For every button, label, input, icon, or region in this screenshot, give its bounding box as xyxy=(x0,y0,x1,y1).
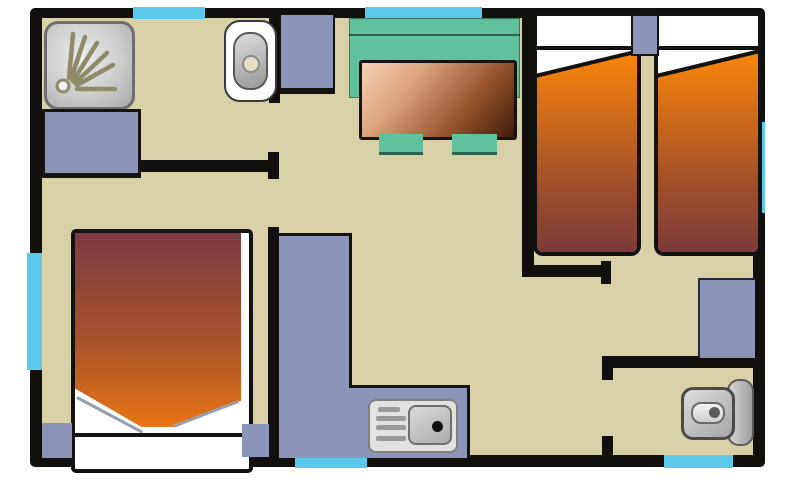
stool-left xyxy=(379,134,423,155)
single-bed-1-pillow xyxy=(537,16,637,50)
double-bedroom-window xyxy=(27,253,42,370)
stool-right xyxy=(452,134,497,155)
double-bed xyxy=(71,229,253,473)
kitchen-sink xyxy=(368,399,458,453)
single-bed-2-cover xyxy=(658,50,758,252)
bathroom-cabinet xyxy=(42,109,141,178)
single-bed-2-pillow xyxy=(658,16,758,50)
wall-twin-bedroom-south xyxy=(522,265,611,277)
washbasin xyxy=(224,20,277,102)
wall-bathroom-south-jamb xyxy=(268,152,279,179)
wall-wc-west-jamb-bottom xyxy=(602,436,613,456)
double-bed-nightstand-right xyxy=(242,424,269,457)
toilet-flush-dot xyxy=(709,407,720,418)
sink-basin xyxy=(408,405,452,445)
twin-beds-bedside-table xyxy=(631,14,659,56)
sink-drainboard-bar xyxy=(376,416,406,421)
single-bed-2 xyxy=(654,12,762,256)
wc-window xyxy=(664,455,733,468)
single-bed-1-cover xyxy=(537,50,637,252)
sink-drainboard-bar xyxy=(378,407,400,412)
washbasin-drain xyxy=(242,55,260,73)
dining-table xyxy=(359,60,517,140)
toilet-seat xyxy=(691,402,725,424)
bathroom-window xyxy=(133,7,205,19)
double-bed-cover xyxy=(75,233,241,435)
shower-spray-icon xyxy=(47,24,126,101)
twin-bedroom-nightstand xyxy=(698,278,755,358)
wall-twin-bedroom-south-jamb xyxy=(601,261,611,284)
sink-drainboard-bar xyxy=(376,436,406,441)
shower-tray xyxy=(44,21,135,110)
sink-drainboard-bar xyxy=(376,425,406,430)
sink-drain xyxy=(432,421,443,432)
storage-cabinet xyxy=(279,13,335,94)
double-bed-nightstand-left xyxy=(42,423,72,458)
wall-bathroom-south xyxy=(130,160,279,172)
single-bed-1 xyxy=(533,12,641,256)
double-bed-pillow-line xyxy=(75,433,249,437)
wall-double-bedroom-east xyxy=(268,227,279,455)
toilet-bowl xyxy=(681,387,735,440)
floor-plan-canvas xyxy=(0,0,796,480)
bench-backrest-line xyxy=(349,34,520,36)
kitchen-counter-edge-line xyxy=(349,233,352,388)
washbasin-bowl xyxy=(233,32,268,90)
kitchen-counter-vertical xyxy=(279,233,352,458)
wall-wc-west-jamb-top xyxy=(602,356,613,380)
